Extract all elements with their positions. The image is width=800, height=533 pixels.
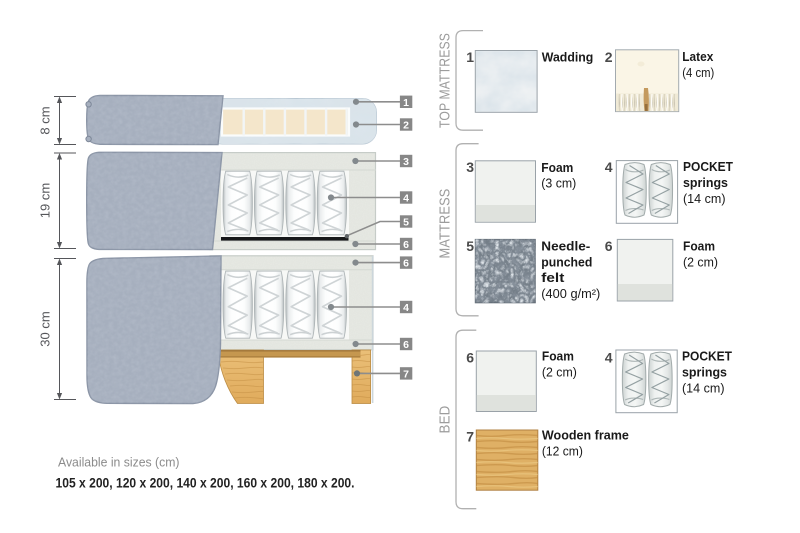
svg-text:springs: springs bbox=[682, 365, 727, 380]
svg-text:8 cm: 8 cm bbox=[38, 106, 53, 134]
svg-text:7: 7 bbox=[466, 429, 474, 445]
svg-text:(14 cm): (14 cm) bbox=[682, 382, 725, 396]
svg-text:3: 3 bbox=[403, 156, 409, 168]
svg-text:(14 cm): (14 cm) bbox=[683, 192, 726, 206]
svg-text:springs: springs bbox=[683, 175, 728, 190]
svg-text:Foam: Foam bbox=[542, 349, 574, 364]
svg-text:6: 6 bbox=[605, 238, 613, 254]
svg-text:4: 4 bbox=[403, 302, 409, 314]
svg-text:7: 7 bbox=[403, 369, 409, 381]
svg-text:Foam: Foam bbox=[683, 239, 715, 254]
svg-text:Needle-: Needle- bbox=[541, 239, 590, 254]
svg-text:(400 g/m²): (400 g/m²) bbox=[541, 287, 600, 301]
svg-text:4: 4 bbox=[605, 350, 613, 366]
svg-text:punched: punched bbox=[541, 254, 592, 269]
svg-text:1: 1 bbox=[466, 49, 474, 65]
svg-text:MATTRESS: MATTRESS bbox=[437, 189, 454, 259]
svg-text:6: 6 bbox=[403, 258, 409, 270]
svg-text:6: 6 bbox=[403, 339, 409, 351]
svg-text:Wooden frame: Wooden frame bbox=[542, 428, 629, 443]
svg-text:1: 1 bbox=[403, 97, 409, 109]
svg-text:4: 4 bbox=[605, 159, 613, 175]
svg-text:30 cm: 30 cm bbox=[38, 311, 53, 346]
svg-text:5: 5 bbox=[466, 238, 474, 254]
svg-text:2: 2 bbox=[403, 120, 409, 132]
svg-text:5: 5 bbox=[403, 217, 409, 229]
svg-text:POCKET: POCKET bbox=[682, 349, 732, 364]
svg-text:Wadding: Wadding bbox=[542, 50, 594, 65]
svg-text:(3 cm): (3 cm) bbox=[541, 177, 576, 191]
svg-text:19 cm: 19 cm bbox=[38, 183, 53, 218]
svg-text:2: 2 bbox=[605, 49, 613, 65]
svg-text:Available in sizes (cm): Available in sizes (cm) bbox=[58, 455, 180, 470]
svg-text:105 x 200, 120 x 200, 140 x 20: 105 x 200, 120 x 200, 140 x 200, 160 x 2… bbox=[56, 475, 355, 491]
svg-text:(4 cm): (4 cm) bbox=[682, 66, 714, 80]
svg-text:4: 4 bbox=[403, 193, 409, 205]
svg-text:BED: BED bbox=[437, 406, 454, 434]
svg-text:(2 cm): (2 cm) bbox=[683, 255, 718, 269]
svg-text:(2 cm): (2 cm) bbox=[542, 365, 577, 379]
svg-text:TOP MATTRESS: TOP MATTRESS bbox=[437, 33, 454, 128]
svg-text:6: 6 bbox=[466, 350, 474, 366]
svg-text:Latex: Latex bbox=[682, 49, 714, 64]
svg-text:Foam: Foam bbox=[541, 160, 573, 175]
svg-text:felt: felt bbox=[541, 270, 565, 285]
svg-text:(12 cm): (12 cm) bbox=[542, 444, 583, 458]
svg-text:3: 3 bbox=[466, 159, 474, 175]
svg-text:POCKET: POCKET bbox=[683, 159, 733, 174]
svg-text:6: 6 bbox=[403, 239, 409, 251]
